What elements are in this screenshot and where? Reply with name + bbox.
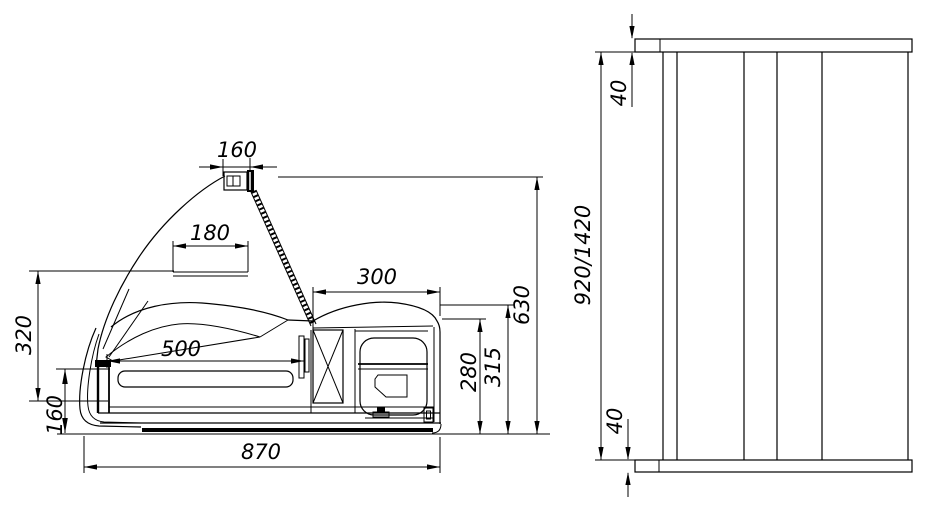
case-front-inner-edge	[88, 334, 141, 423]
arrow-bottom	[598, 447, 603, 460]
arrow-top	[477, 319, 482, 332]
dim-bottom-panel: 40	[603, 408, 631, 497]
dim-label-180: 180	[190, 221, 230, 245]
dim-display-depth: 500	[107, 337, 304, 368]
arrow-top	[534, 177, 539, 190]
dim-lamp-width: 160	[199, 138, 277, 176]
dim-top-panel: 40	[607, 14, 635, 107]
dim-label-40-top: 40	[607, 80, 631, 107]
base-right-corner	[432, 424, 441, 433]
compressor-foot-left	[377, 407, 385, 412]
compressor-label-plate	[375, 375, 407, 397]
dim-label-160-left: 160	[43, 395, 67, 435]
arrow-bottom	[534, 421, 539, 434]
arrow-up	[625, 472, 630, 485]
dim-label-160-top: 160	[217, 138, 257, 162]
arrow-right	[235, 243, 248, 248]
dim-column-height: 920/1420	[571, 52, 604, 460]
arrow-right	[291, 358, 304, 363]
arrow-top	[62, 369, 68, 384]
front-view: 40 920/1420 40	[571, 14, 912, 497]
dim-label-40-bottom: 40	[603, 408, 627, 435]
dim-header-box: 180	[173, 221, 248, 276]
arrow-top	[598, 52, 603, 65]
arrow-bottom	[505, 421, 510, 434]
arrow-bottom	[35, 388, 40, 401]
arrow-right	[250, 164, 263, 169]
technical-drawing-page: 160 180 300 500	[0, 0, 927, 514]
dim-label-300: 300	[357, 265, 397, 289]
wedge-link-line	[260, 320, 288, 337]
side-view: 160 180 300 500	[12, 138, 550, 473]
rear-glass-edge-1	[251, 192, 311, 326]
arrow-right	[427, 464, 440, 469]
dim-label-280: 280	[457, 352, 481, 392]
rear-glass-hatching	[254, 191, 314, 325]
arrow-left	[84, 464, 97, 469]
dim-machine-compartment: 300	[313, 265, 440, 321]
dim-label-500: 500	[161, 337, 201, 361]
display-tray	[118, 371, 293, 387]
dim-front-panel-height: 160	[43, 369, 110, 435]
dim-label-320: 320	[12, 315, 36, 355]
dim-label-870: 870	[241, 440, 281, 464]
arrow-right	[427, 289, 440, 294]
divider-plate-a	[299, 336, 304, 378]
front-body	[635, 39, 912, 472]
arrow-left	[313, 289, 326, 294]
plinth-bar	[142, 428, 433, 432]
divider-plate-b	[305, 339, 309, 372]
arrow-up	[629, 52, 634, 65]
rear-glass-edge-2	[256, 190, 316, 324]
dim-label-315: 315	[481, 347, 505, 387]
dim-overall-depth: 870	[84, 436, 440, 473]
side-body	[80, 170, 441, 433]
compressor-body	[360, 338, 427, 415]
top-panel	[635, 39, 912, 52]
bottom-panel	[635, 460, 912, 472]
arrow-bottom	[477, 421, 482, 434]
arrow-left	[173, 243, 186, 248]
display-case-drawing: 160 180 300 500	[0, 0, 927, 514]
dim-compartment-height: 280	[442, 319, 486, 434]
cover-underside	[313, 326, 433, 328]
arrow-down	[625, 447, 630, 460]
arrow-left	[210, 164, 223, 169]
compressor-foot-right	[424, 408, 433, 422]
arrow-down	[629, 26, 634, 39]
arrow-top	[35, 271, 40, 284]
dim-label-920-1420: 920/1420	[571, 205, 595, 306]
dim-label-630: 630	[510, 285, 534, 325]
